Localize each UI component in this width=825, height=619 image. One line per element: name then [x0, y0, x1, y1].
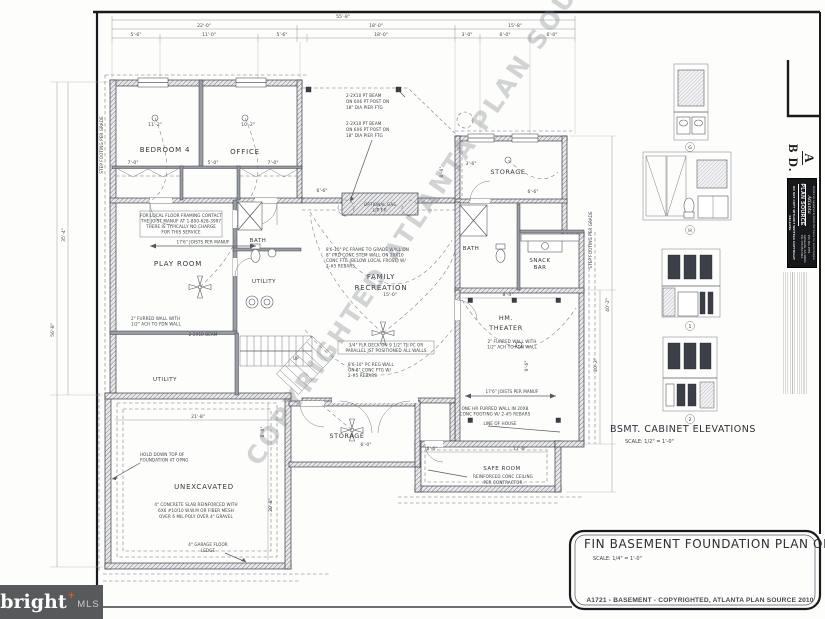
dim-storage-b: 6'-0": [361, 442, 372, 448]
plan-scale: SCALE: 1/4" = 1'-0": [593, 556, 642, 562]
abd-logo: A B D.: [783, 143, 817, 173]
dim-t3f: 6'-0": [500, 32, 511, 38]
note-onehr-1: ONE HR FURRED WALL IN 20X8: [462, 406, 529, 411]
bright-mls-plus-icon: +: [68, 591, 76, 601]
dim-t2a: 22'-0": [197, 23, 211, 29]
note-stem2-2: ON 8" CONC FTG W/: [348, 368, 392, 373]
fine-print-disclaimer: [783, 272, 808, 394]
note-deck-1: 3/4" FLR DECK ON 9 1/2" TJI PC OR: [349, 343, 424, 348]
dim-t3e: 3'-0": [462, 32, 473, 38]
dim-left-inner: 35'-4": [61, 228, 67, 242]
elevations-scale: SCALE: 1/2" = 1'-0": [625, 439, 674, 445]
room-label-utility1: UTILITY: [252, 279, 276, 285]
note-contact-4: FOR THIS SERVICE: [161, 230, 201, 235]
plan-sheet: BEDROOM 4 OFFICE PLAY ROOM BATH UTILITY …: [0, 0, 825, 619]
elev-tag-2: 2: [689, 417, 692, 423]
note-gas-2: L/P F.P.: [373, 208, 387, 213]
dim-t3d: 18'-0": [374, 32, 388, 38]
plan-source-label: All plans are copyrighted by Atlanta Pla…: [787, 178, 817, 268]
bright-mls-sub: MLS: [77, 599, 100, 610]
dim-storage2: 6'-6": [528, 189, 539, 195]
note-furred-th-2: 1/2" ACH TO FDN WALL: [487, 345, 537, 350]
elev-tag-1: 1: [689, 324, 692, 330]
dim-t3c: 5'-6": [277, 32, 288, 38]
elev-tag-g: G: [688, 145, 692, 151]
room-label-storage-tr: STORAGE: [490, 168, 525, 176]
room-label-bath2: BATH: [463, 246, 480, 252]
note-gas-1: OPTIONAL GAS: [364, 202, 396, 207]
abd-logo-bd: B D.: [786, 144, 801, 173]
note-beam1-3: 18" DIA PIER FTG: [346, 105, 383, 110]
room-label-storage-b: STORAGE: [329, 432, 364, 440]
note-line-of-house: LINE OF HOUSE: [483, 421, 516, 426]
note-slab-1: 4" CONCRETE SLAB REINFORCED WITH: [154, 502, 237, 507]
note-step-footing-right: STEP FOOTING PER GRADE: [588, 211, 593, 269]
dim-right-outer: 40'-2": [605, 298, 611, 312]
room-label-snack: SNACK: [529, 258, 550, 264]
note-joists-1: 17'6" JOISTS PER MANUF: [177, 240, 230, 245]
note-beam1-2: ON 6X6 PT POST ON: [346, 99, 389, 104]
room-label-playroom: PLAY ROOM: [154, 260, 202, 268]
elevations-title: BSMT. CABINET ELEVATIONS: [610, 424, 756, 435]
dim-closet2: 5'-0": [208, 160, 219, 166]
plan-source-notice-top: All plans are copyrighted by Atlanta Pla…: [813, 179, 817, 267]
dim-top-overall: 55'-8": [336, 14, 350, 20]
room-label-unexcavated: UNEXCAVATED: [174, 483, 234, 491]
dim-t2c: 15'-8": [508, 23, 522, 29]
dim-closet1: 7'-0": [128, 160, 139, 166]
bright-mls-logo: bright+MLS: [0, 585, 103, 619]
note-contact-3: THERE IS TYPICALLY NO CHARGE: [145, 224, 216, 229]
room-label-bedroom4: BEDROOM 4: [140, 146, 190, 154]
dim-theater-w: 8'-4": [503, 292, 514, 298]
dim-bedroom: 11'-2": [148, 122, 162, 128]
note-furred-left-1: 2" FURRED WALL WITH: [131, 316, 180, 321]
dim-safe-a: 6'-6": [427, 446, 438, 452]
dim-office: 10'-2": [241, 122, 255, 128]
dim-family-b: 6'-6": [317, 188, 328, 194]
floor-plan-drawing: BEDROOM 4 OFFICE PLAY ROOM BATH UTILITY …: [0, 0, 825, 619]
note-beam2-3: 18" DIA PIER FTG: [346, 133, 383, 138]
room-label-hm: HM.: [499, 314, 513, 322]
note-safec-2: PER CONTRACTOR: [483, 480, 522, 485]
plan-source-name: PLAN SOURCE: [798, 184, 807, 226]
note-onehr-2: CONC FOOTING W/ 2-#5 REBARS: [460, 412, 531, 417]
note-furred-th-1: 2" FURRED WALL WITH: [487, 339, 536, 344]
note-joists-2: 17'6" JOISTS PER MANUF: [486, 389, 539, 394]
note-deck-2: PARALLEL JST POSITIONED ALL WALLS: [345, 348, 426, 353]
note-step-footing-left: STEP FOOTING PER GRADE: [99, 116, 104, 174]
dim-safe-b: 17'-8": [513, 446, 527, 452]
note-beam2-label: 2-2X10 BEAM: [189, 332, 218, 337]
note-slab-3: OVER 6 MIL POLY OVER 4" GRAVEL: [159, 514, 233, 519]
dim-t2b: 18'-0": [369, 23, 383, 29]
room-label-bath1: BATH: [250, 238, 267, 244]
plan-source-script: Atlanta: [806, 184, 811, 226]
bright-mls-wordmark: bright: [0, 593, 66, 612]
dim-closet3: 7'-0": [268, 160, 279, 166]
note-hold-1: HOLD DOWN TOP OF: [140, 452, 185, 457]
dim-family-w: 15'-0": [383, 292, 397, 298]
dim-garage-w: 21'-8": [191, 414, 205, 420]
note-stem2-3: 2-#5 REBARS: [348, 373, 377, 378]
dim-t3a: 5'-6": [131, 32, 142, 38]
note-beam2-2: ON 6X6 PT POST ON: [346, 127, 389, 132]
note-contact-1: FOR LOCAL FLOOR FRAMING CONTACT: [140, 213, 222, 218]
note-slab-2: 6X6 #10/10 W.W.M OR FIBER MESH: [158, 508, 234, 513]
abd-logo-a: A: [802, 151, 816, 164]
dim-t3b: 11'-0": [202, 32, 216, 38]
plan-title: FIN BASEMENT FOUNDATION PLAN OPTION: [584, 537, 825, 551]
sheet-footer-copyright: A1721 - BASEMENT - COPYRIGHTED, ATLANTA …: [586, 597, 813, 604]
room-label-theater: THEATER: [488, 324, 523, 332]
dim-left-outer: 56'-8": [50, 323, 56, 337]
note-ledge-1: 4" GARAGE FLOOR: [188, 542, 228, 547]
plan-source-notice-bottom: DO NOT COPY WITHOUT WRITTEN COPYRIGHT RE…: [788, 179, 797, 267]
cabinet-elevations: [643, 64, 731, 424]
note-beam2-1: 2-2X10 PT BEAM: [346, 121, 382, 126]
elev-tag-h: H: [688, 228, 691, 234]
dim-garage-h: 20'-8": [268, 498, 274, 512]
room-label-bar: BAR: [534, 265, 547, 271]
registration-corner-mark: [788, 60, 820, 116]
note-safec-1: REINFORCED CONC CEILING: [473, 474, 533, 479]
room-label-office: OFFICE: [230, 148, 260, 156]
room-label-saferoom: SAFE ROOM: [483, 466, 520, 472]
note-ledge-2: LEDGE: [201, 548, 216, 553]
stair-up-label: UP: [293, 356, 299, 361]
dim-theater-h: 9'-6": [524, 361, 530, 372]
room-label-utility2: UTILITY: [153, 377, 177, 383]
note-contact-2: THE JOIST MANUF AT 1-800-628-3997: [140, 219, 222, 224]
note-stem1-4: 2-#5 REBARS: [326, 264, 355, 269]
note-stem2-1: 8'6-10" PC REG WALL: [348, 362, 394, 367]
note-hold-2: FOUNDATION AT OPNG: [140, 458, 189, 463]
dim-right-inner: 20'-2": [593, 358, 599, 372]
note-beam1-1: 2-2X10 PT BEAM: [346, 93, 382, 98]
note-furred-left-2: 1/2" ACH TO FDN WALL: [131, 322, 181, 327]
